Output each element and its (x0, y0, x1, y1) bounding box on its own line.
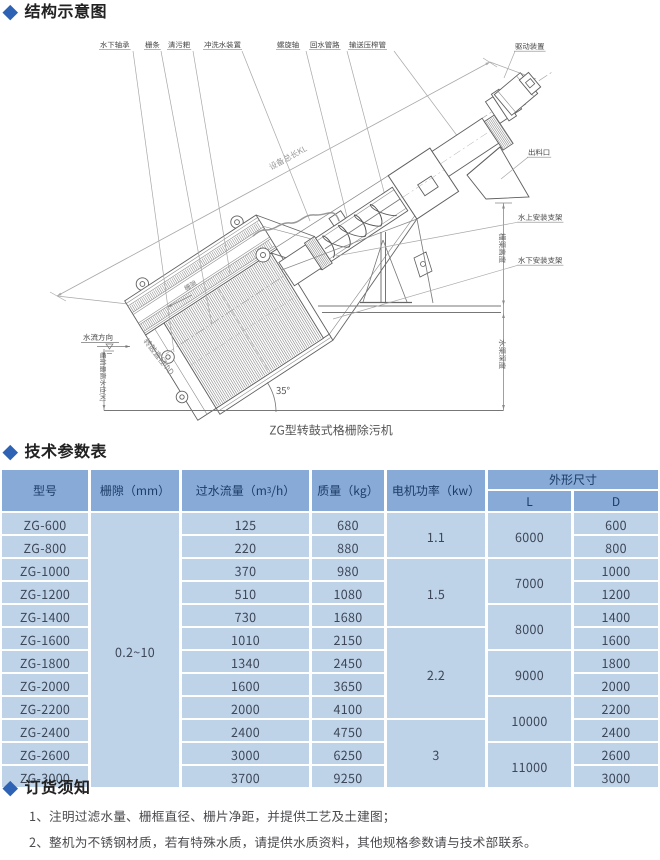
svg-text:栅条: 栅条 (145, 40, 160, 51)
svg-text:水下轴承: 水下轴承 (100, 40, 130, 51)
svg-text:螺旋轴: 螺旋轴 (277, 40, 299, 51)
svg-text:清污耙: 清污耙 (168, 40, 191, 51)
svg-text:水下安装支架: 水下安装支架 (518, 255, 563, 266)
svg-text:输送压榨管: 输送压榨管 (349, 40, 386, 51)
svg-text:设备总长KL: 设备总长KL (267, 143, 309, 173)
svg-text:水流方向: 水流方向 (83, 332, 113, 343)
svg-text:出料口: 出料口 (528, 147, 550, 158)
svg-text:驱动装置: 驱动装置 (515, 41, 545, 52)
svg-text:35°: 35° (276, 383, 291, 397)
svg-text:冲洗水装置: 冲洗水装置 (204, 40, 241, 51)
svg-text:栅渠高度: 栅渠高度 (497, 233, 508, 264)
svg-text:水上安装支架: 水上安装支架 (518, 212, 563, 223)
svg-text:ZG型转鼓式格栅除污机: ZG型转鼓式格栅除污机 (269, 422, 393, 439)
svg-text:回水管路: 回水管路 (310, 40, 340, 51)
svg-text:栅前最高水位(K): 栅前最高水位(K) (99, 352, 109, 402)
svg-text:水渠深度: 水渠深度 (497, 339, 508, 370)
